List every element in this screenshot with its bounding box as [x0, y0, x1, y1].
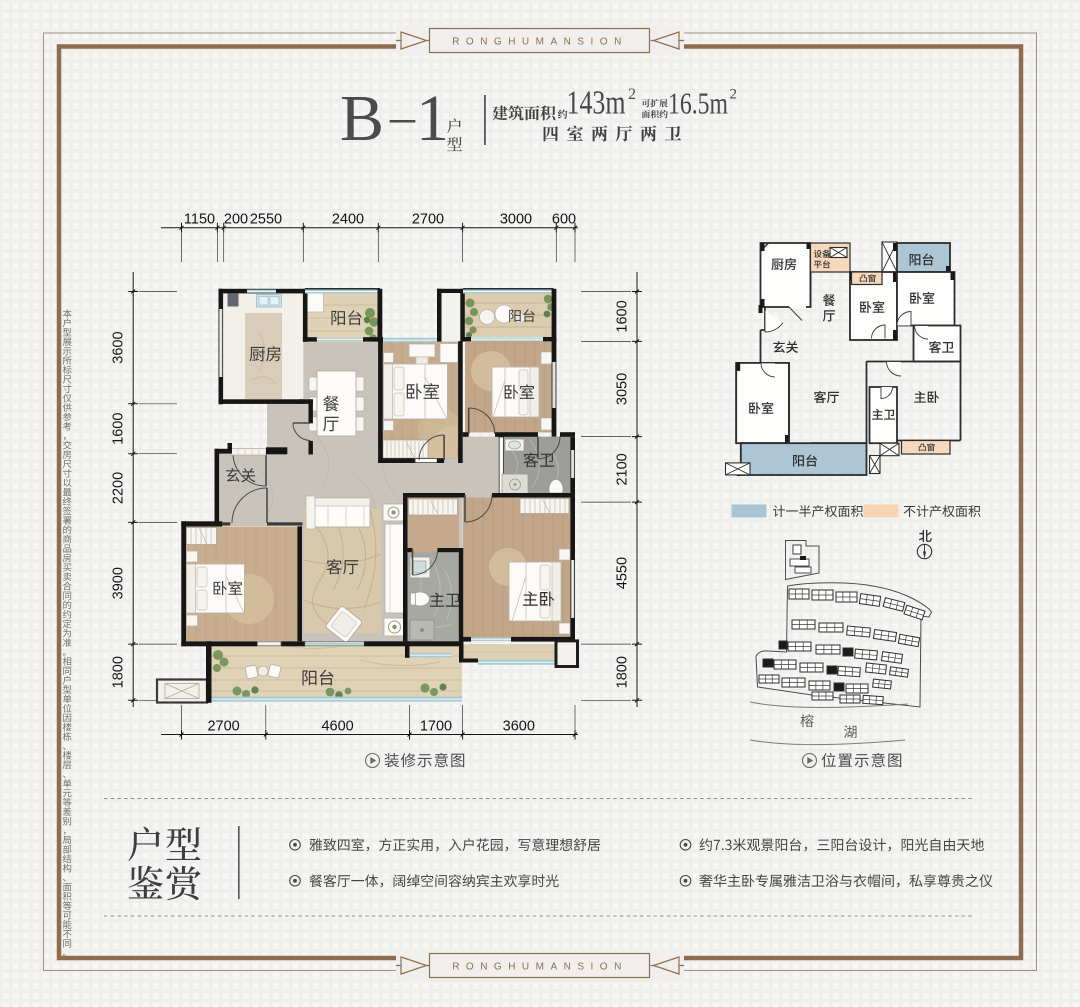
svg-text:RONGHUMANSION: RONGHUMANSION [452, 36, 628, 47]
svg-text:2: 2 [628, 86, 636, 103]
svg-text:1: 1 [416, 82, 449, 155]
svg-text:4550: 4550 [615, 557, 631, 589]
svg-text:3000: 3000 [500, 212, 532, 228]
svg-text:1600: 1600 [615, 300, 631, 332]
svg-text:RONGHUMANSION: RONGHUMANSION [452, 961, 628, 972]
svg-text:–: – [389, 88, 416, 144]
svg-text:4600: 4600 [321, 719, 353, 735]
svg-text:1800: 1800 [111, 656, 127, 688]
svg-text:16.5m: 16.5m [668, 86, 728, 121]
svg-text:B: B [340, 82, 384, 155]
svg-text:2: 2 [730, 87, 738, 103]
svg-text:1700: 1700 [420, 719, 452, 735]
svg-text:600: 600 [552, 212, 576, 228]
svg-text:1150: 1150 [184, 212, 215, 228]
svg-text:3600: 3600 [111, 331, 127, 363]
svg-text:2400: 2400 [332, 212, 364, 228]
svg-text:3050: 3050 [615, 373, 631, 405]
svg-text:2200: 2200 [111, 472, 127, 504]
svg-text:143m: 143m [567, 85, 626, 122]
svg-text:1800: 1800 [615, 656, 631, 688]
svg-text:2700: 2700 [412, 212, 444, 228]
svg-text:2100: 2100 [615, 453, 631, 485]
svg-text:3900: 3900 [111, 567, 127, 599]
svg-text:2550: 2550 [250, 212, 282, 228]
svg-text:200: 200 [224, 212, 248, 228]
svg-text:2700: 2700 [207, 719, 239, 735]
svg-text:3600: 3600 [503, 719, 535, 735]
svg-text:1600: 1600 [111, 413, 127, 445]
